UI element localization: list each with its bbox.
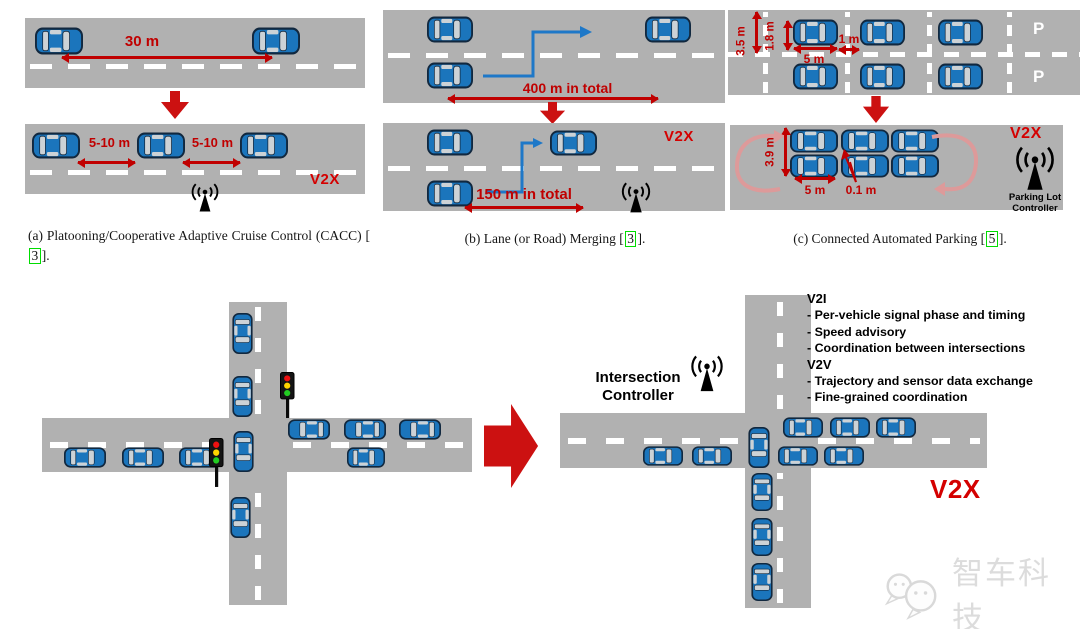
parking-sign: P xyxy=(1033,19,1044,39)
lane-line xyxy=(777,300,783,409)
antenna-icon xyxy=(687,355,727,393)
stall-line xyxy=(1007,12,1012,93)
v2x-figure: 30 m 5-10 m 5-10 m V2X (a) Platooning/Co… xyxy=(0,0,1080,629)
v2x-label: V2X xyxy=(310,171,340,188)
right-arrow-icon xyxy=(484,404,540,490)
gap-arrow xyxy=(839,48,859,51)
car-icon xyxy=(938,63,983,90)
v2v-header: V2V xyxy=(807,357,1047,373)
v2i-header: V2I xyxy=(807,291,1047,307)
car-icon xyxy=(643,446,683,466)
gap-label: 5-10 m xyxy=(82,135,137,150)
lane-width-label: 3.5 m xyxy=(736,26,748,55)
caption-a: (a) Platooning/Cooperative Adaptive Crui… xyxy=(28,226,370,265)
car-icon xyxy=(550,130,597,156)
car-icon xyxy=(938,19,983,46)
distance-arrow xyxy=(62,56,272,59)
car-icon xyxy=(35,27,83,55)
car-icon xyxy=(233,431,254,472)
v2v-item: - Fine-grained coordination xyxy=(807,389,1047,405)
lane-line xyxy=(568,438,738,444)
parking-center-line xyxy=(728,52,1080,57)
circulation-arrow-icon xyxy=(732,127,784,199)
car-icon xyxy=(427,129,473,156)
car-icon xyxy=(288,419,330,440)
gap-arrow xyxy=(183,161,240,164)
car-icon xyxy=(32,132,80,159)
lane-line xyxy=(818,438,980,444)
car-width-arrow xyxy=(786,21,789,50)
car-icon xyxy=(137,132,185,159)
lane-line xyxy=(30,64,360,69)
lane-line xyxy=(255,477,261,600)
citation-link[interactable]: 3 xyxy=(625,231,637,247)
length-arrow xyxy=(794,47,837,50)
traffic-light-icon xyxy=(208,438,224,488)
car-icon xyxy=(240,132,288,159)
car-icon xyxy=(876,417,916,438)
lane-width-arrow xyxy=(755,12,758,53)
car-icon xyxy=(751,518,773,556)
distance-arrow xyxy=(465,206,583,209)
car-icon xyxy=(751,473,773,511)
v2v-item: - Trajectory and sensor data exchange xyxy=(807,373,1047,389)
car-icon xyxy=(692,446,732,466)
v2x-label: V2X xyxy=(664,128,694,145)
length-arrow xyxy=(795,177,835,180)
v2i-item: - Speed advisory xyxy=(807,324,1047,340)
gap-label: 0.1 m xyxy=(841,183,881,197)
car-icon xyxy=(230,497,251,538)
distance-label: 400 m in total xyxy=(505,80,630,96)
v2i-item: - Coordination between intersections xyxy=(807,340,1047,356)
length-label: 5 m xyxy=(796,52,832,66)
gap-arrow xyxy=(78,161,135,164)
intersection-controller-label: Intersection Controller xyxy=(588,369,688,405)
lane-line xyxy=(388,166,720,171)
watermark: 智车科技 xyxy=(878,548,1080,629)
distance-arrow xyxy=(448,97,658,100)
car-icon xyxy=(232,376,253,417)
car-icon xyxy=(783,417,823,438)
car-icon xyxy=(860,63,905,90)
car-icon xyxy=(778,446,818,466)
car-icon xyxy=(793,63,838,90)
gap-pointer-arrow-icon xyxy=(840,148,862,184)
car-icon xyxy=(64,447,106,468)
car-icon xyxy=(122,447,164,468)
v2x-label: V2X xyxy=(1010,125,1042,143)
car-icon xyxy=(232,313,253,354)
car-icon xyxy=(751,563,773,601)
down-arrow-icon xyxy=(160,91,190,119)
v2x-label: V2X xyxy=(930,474,981,505)
car-width-label: 1.8 m xyxy=(765,21,777,50)
antenna-icon xyxy=(618,182,654,214)
car-icon xyxy=(252,27,300,55)
car-icon xyxy=(645,16,691,43)
car-icon xyxy=(427,16,473,43)
car-icon xyxy=(427,62,473,89)
length-label: 5 m xyxy=(795,183,835,197)
stall-line xyxy=(927,12,932,93)
lane-line xyxy=(255,307,261,414)
car-icon xyxy=(824,446,864,466)
distance-label: 30 m xyxy=(112,33,172,50)
watermark-text: 智车科技 xyxy=(952,548,1080,629)
gap-label: 5-10 m xyxy=(185,135,240,150)
car-icon xyxy=(344,419,386,440)
circulation-arrow-icon xyxy=(927,130,981,198)
v2x-info-block: V2I - Per-vehicle signal phase and timin… xyxy=(807,291,1047,406)
citation-link[interactable]: 3 xyxy=(29,248,41,264)
parking-sign: P xyxy=(1033,67,1044,87)
antenna-icon xyxy=(1011,146,1059,192)
traffic-light-icon xyxy=(279,372,295,419)
car-icon xyxy=(748,427,770,468)
down-arrow-icon xyxy=(539,102,566,124)
citation-link[interactable]: 5 xyxy=(986,231,998,247)
row-width-arrow xyxy=(784,128,787,176)
car-icon xyxy=(399,419,441,440)
antenna-icon xyxy=(188,183,222,213)
distance-label: 150 m in total xyxy=(468,186,580,203)
car-icon xyxy=(830,417,870,438)
caption-b: (b) Lane (or Road) Merging [3]. xyxy=(425,229,685,249)
down-arrow-icon xyxy=(862,96,890,123)
lane-line xyxy=(777,473,783,603)
wechat-logo-icon xyxy=(878,564,944,622)
car-icon xyxy=(790,129,838,153)
caption-c: (c) Connected Automated Parking [5]. xyxy=(765,229,1035,249)
car-icon xyxy=(347,447,385,468)
v2i-item: - Per-vehicle signal phase and timing xyxy=(807,307,1047,323)
parking-controller-label: Parking Lot Controller xyxy=(1002,193,1068,215)
